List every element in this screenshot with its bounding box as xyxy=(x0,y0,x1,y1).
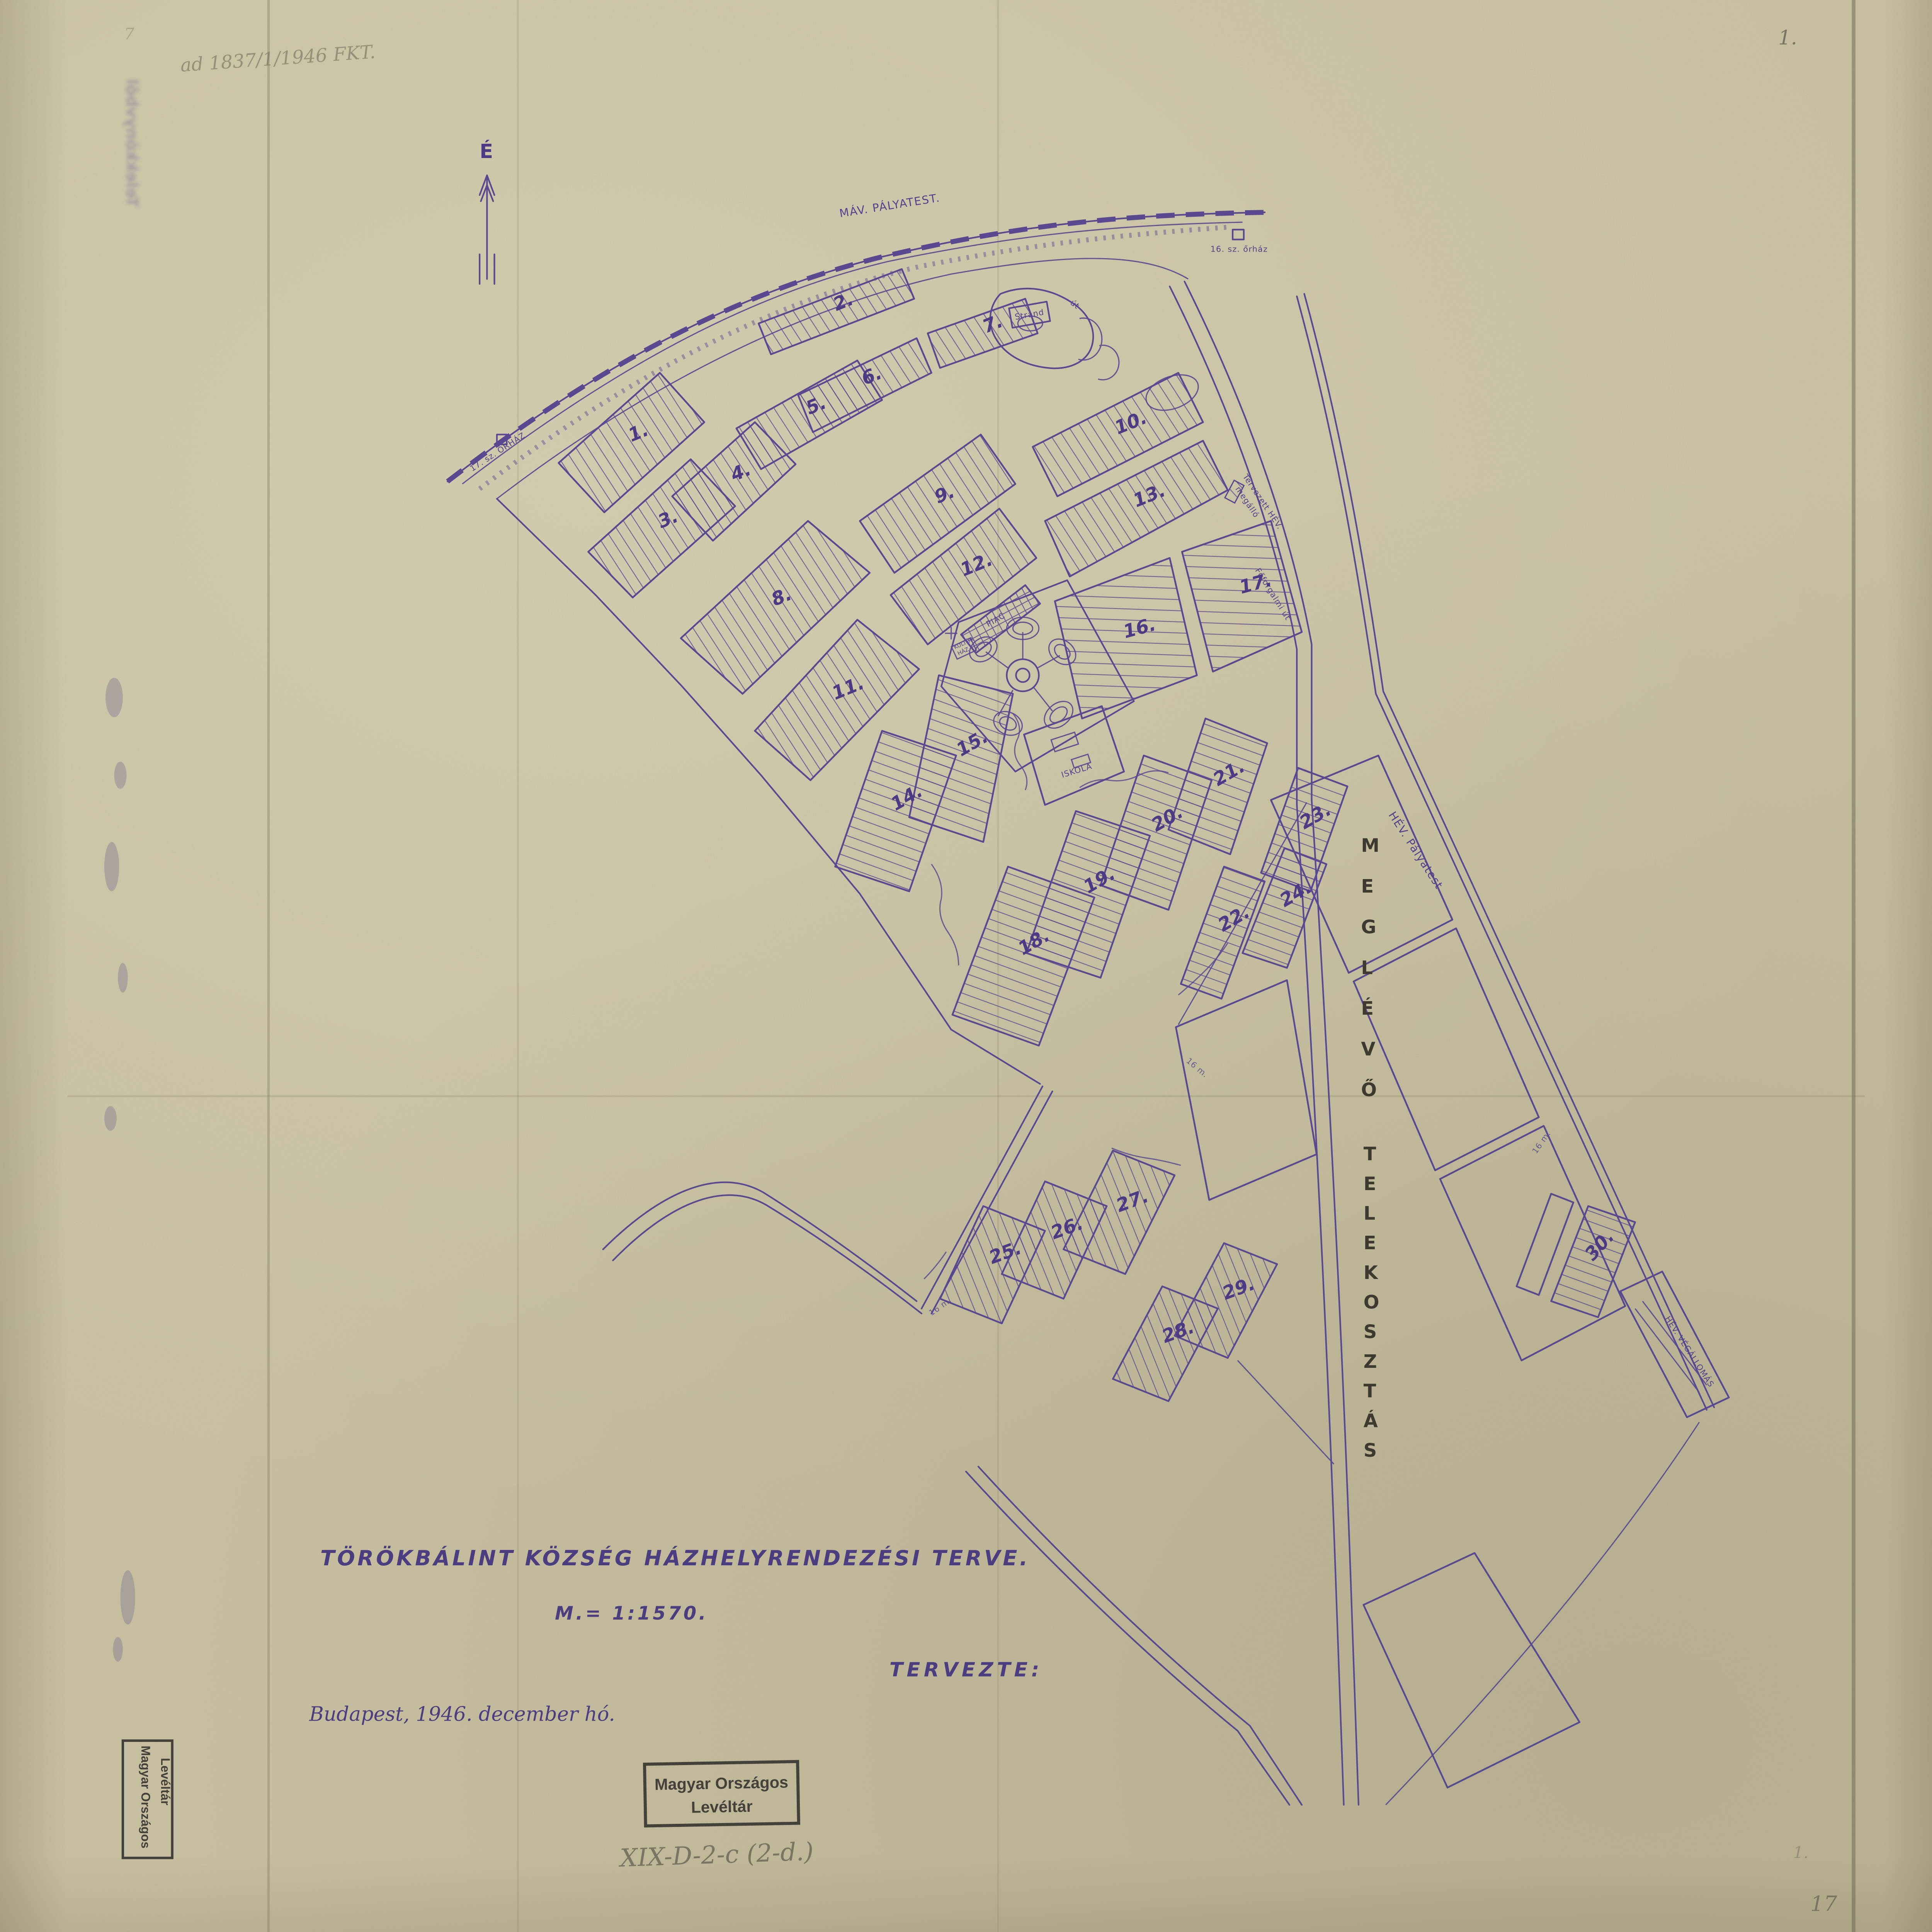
archive-stamp-vertical-line2: Levéltár xyxy=(158,1758,172,1806)
paper-texture xyxy=(67,0,1865,1932)
map-scale: M.= 1:1570. xyxy=(555,1603,708,1624)
date-line: Budapest, 1946. december hó. xyxy=(309,1703,615,1726)
map-canvas: Telekkönyvből ad 1837/1/1946 FKT. 7 1. 1… xyxy=(0,0,1932,1932)
corner-mark-top-left: 7 xyxy=(124,24,134,43)
north-label: É xyxy=(480,139,493,163)
designed-by-label: TERVEZTE: xyxy=(889,1659,1043,1682)
faint-offset-stamp: Telekkönyvből xyxy=(122,79,141,207)
faint-offset-stamp-text: Telekkönyvből xyxy=(122,79,141,207)
corner-mark-bottom-right: 17 xyxy=(1810,1892,1837,1916)
archive-stamp-line2: Levéltár xyxy=(691,1797,753,1816)
map-title: TÖRÖKBÁLINT KÖZSÉG HÁZHELYRENDEZÉSI TERV… xyxy=(320,1545,1030,1570)
corner-mark-bottom-right-small: 1. xyxy=(1793,1843,1809,1862)
guardhouse-16-label: 16. sz. őrház xyxy=(1211,245,1268,254)
corner-mark-top-right: 1. xyxy=(1778,27,1797,49)
archive-stamp-line1: Magyar Országos xyxy=(655,1773,789,1793)
archive-stamp-vertical-line1: Magyar Országos xyxy=(139,1746,153,1849)
scanned-map-sheet: Telekkönyvből ad 1837/1/1946 FKT. 7 1. 1… xyxy=(0,0,1932,1932)
